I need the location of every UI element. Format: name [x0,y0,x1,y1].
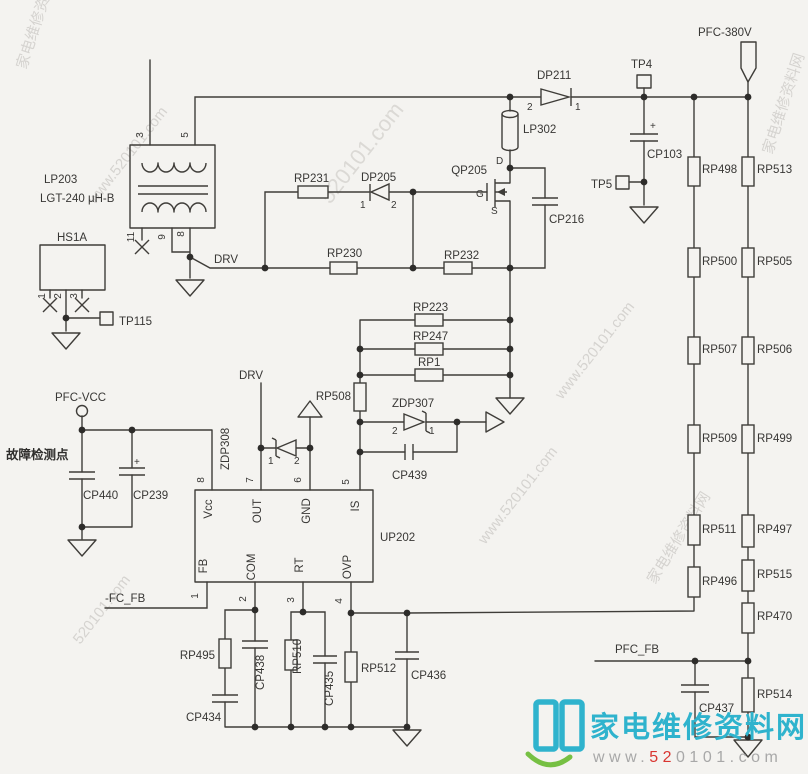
pin-number: 3 [69,293,80,299]
pfc-schematic: 家电维修资料网 www.520101.com 520101.com 家电维修资料… [0,0,808,774]
capacitor-cp434: CP434 [186,695,238,724]
capacitor-cp216: CP216 [532,198,584,226]
resistor-ref: RP223 [413,302,448,314]
resistor-ref: RP506 [757,344,792,356]
watermark-text: 家电维修资料网 [760,51,808,156]
resistor-ref: RP511 [702,524,736,536]
resistor-ref: RP496 [702,576,737,588]
watermark-text: www.520101.com [551,299,638,404]
ic-pin-name: FB [198,558,210,573]
resistor-ref: RP507 [702,344,737,356]
resistor-ref: RP247 [413,331,448,343]
diode-pin: 1 [360,200,366,211]
ground-symbol [393,730,421,746]
ground-symbol [52,333,80,349]
capacitor-cp239: + CP239 [119,457,168,502]
inductor-lp302: LP302 [502,111,556,151]
capacitor-ref: CP440 [83,490,118,502]
polarity-plus: + [650,121,656,132]
resistor-rp513: RP513 [742,157,792,186]
connector-hs1a: HS1A 1 2 3 [37,232,105,312]
watermark-text: www.520101.com [474,444,561,549]
resistor-rp496: RP496 [688,567,737,597]
transformer-ref: LP203 [44,174,77,186]
capacitor-cp436: CP436 [395,652,446,682]
ground-symbol-right [486,412,504,432]
pin-number: 4 [334,598,345,604]
book-icon [528,702,582,765]
resistor-ref: RP499 [757,433,792,445]
test-point-tp4: TP4 [631,59,653,88]
fault-detect-note: 故障检测点 [6,447,69,462]
resistor-rp515: RP515 [742,560,792,591]
capacitor-cp437: CP437 [681,685,734,715]
pin-number: 3 [135,132,146,138]
mosfet-ref: QP205 [451,165,487,177]
capacitor-cp103: + CP103 [630,121,682,161]
pin-number: 6 [293,477,304,483]
net-label-pfc-fb: PFC_FB [615,644,659,656]
ground-symbol [496,398,524,414]
resistor-ref: RP510 [292,639,304,674]
resistor-ref: RP1 [418,357,440,369]
mosfet-qp205: QP205 D G S [451,156,510,217]
resistor-rp230: RP230 [327,248,362,274]
capacitor-ref: CP436 [411,670,446,682]
logo-url-rest: 0101.com [676,749,782,766]
resistor-rp506: RP506 [742,337,792,364]
test-point-tp5: TP5 [591,176,629,191]
test-point-tp115: TP115 [100,312,152,328]
resistor-ref: RP495 [180,650,215,662]
no-connect-x [135,240,149,254]
resistor-rp509: RP509 [688,425,737,453]
pin-number: 2 [53,293,64,299]
pin-number: 7 [245,477,256,483]
resistor-ref: RP497 [757,524,792,536]
resistor-rp1: RP1 [415,357,443,381]
resistor-ref: RP230 [327,248,362,260]
ic-pin-name: OUT [252,499,264,523]
capacitor-ref: CP439 [392,470,427,482]
pin-number: 3 [286,597,297,603]
mosfet-pin-d: D [496,156,503,167]
ground-symbol-up [298,401,322,417]
resistor-ref: RP513 [757,164,792,176]
resistor-rp495: RP495 [180,639,231,668]
resistor-ref: RP231 [294,173,329,185]
pin-number: 5 [341,479,352,485]
net-label-drv: DRV [239,370,263,382]
ic-pin-name: Vcc [203,499,215,518]
pin-number: 2 [238,596,249,602]
ic-pin-name: OVP [342,555,354,580]
capacitor-ref: CP216 [549,214,584,226]
capacitor-ref: CP438 [255,655,267,690]
ground-symbol [68,540,96,556]
resistor-ref: RP470 [757,611,792,623]
diode-ref: ZDP307 [392,398,434,410]
test-point-label: TP4 [631,59,653,71]
terminal-pfc-vcc: PFC-VCC [55,392,106,417]
pin-number: 5 [180,132,191,138]
resistor-ref: RP500 [702,256,737,268]
diode-pin: 1 [268,456,274,467]
test-point-label: TP115 [119,316,152,328]
inductor-ref: LP302 [523,124,556,136]
logo-site-name: 家电维修资料网 [590,710,807,744]
resistor-rp500: RP500 [688,248,737,277]
net-label-drv: DRV [214,254,238,266]
diode-pin: 1 [575,102,581,113]
diode-pin: 1 [429,426,435,437]
ic-pin-name: GND [301,498,313,524]
pin-number: 9 [157,234,168,240]
capacitor-cp440: CP440 [69,472,118,502]
resistor-rp511: RP511 [688,515,736,545]
pin-number: 8 [176,231,187,237]
resistor-rp470: RP470 [742,603,792,633]
capacitor-cp438: CP438 [242,641,268,690]
resistor-rp499: RP499 [742,425,792,453]
resistor-rp223: RP223 [413,302,448,326]
wire-cp103-branch [629,88,644,205]
ic-pin-name: RT [294,557,306,572]
diode-ref: ZDP308 [220,428,232,470]
capacitor-ref: CP239 [133,490,168,502]
diode-pin: 2 [391,200,397,211]
diode-ref: DP205 [361,172,396,184]
resistor-rp232: RP232 [444,250,479,274]
resistor-ref: RP498 [702,164,737,176]
resistor-rp231: RP231 [294,173,329,198]
ic-ref: UP202 [380,532,415,544]
diode-pin: 2 [294,456,300,467]
ic-pin-name: IS [350,500,362,511]
resistor-ref: RP509 [702,433,737,445]
resistor-ref: RP514 [757,689,793,701]
mosfet-pin-g: G [476,189,484,200]
logo-url: www.520101.com [592,749,782,766]
resistor-rp505: RP505 [742,248,792,277]
test-point-label: TP5 [591,179,612,191]
diode-ref: DP211 [537,70,571,82]
net-label: PFC-VCC [55,392,106,404]
logo-url-red: 52 [649,749,676,766]
capacitor-ref: CP434 [186,712,222,724]
resistor-rp247: RP247 [413,331,448,355]
zener-zdp307: ZDP307 2 1 [392,398,435,437]
schematic-page: 家电维修资料网 www.520101.com 520101.com 家电维修资料… [0,0,808,774]
net-label-fc-fb: -FC_FB [105,593,146,605]
diode-pin: 2 [392,426,398,437]
connector-ref: HS1A [57,232,87,244]
capacitor-ref: CP103 [647,149,682,161]
resistor-rp508: RP508 [316,383,366,411]
ground-symbol [630,207,658,223]
terminal-flag [741,42,756,82]
watermark-text: 520101.com [70,572,134,648]
transformer-value: LGT-240 μH-B [40,193,115,205]
wire-out-gnd [261,383,310,490]
diode-dp211: DP211 2 1 [527,70,581,113]
resistor-rp510: RP510 [285,639,304,674]
pin-number: 1 [37,293,48,299]
logo-url-www: www. [592,749,649,766]
mosfet-pin-s: S [491,206,498,217]
terminal-pfc-380v: PFC-380V [698,27,756,82]
resistor-rp514: RP514 [742,678,793,712]
resistor-ref: RP515 [757,569,792,581]
pin-number: 8 [196,477,207,483]
resistor-ref: RP508 [316,391,351,403]
watermark-text: 家电维修资料网 [14,0,63,71]
pin-number: 1 [190,593,201,599]
resistor-rp498: RP498 [688,157,737,186]
wire-vcc [82,416,212,539]
resistor-rp512: RP512 [345,652,396,682]
site-logo: 家电维修资料网 www.520101.com [528,702,807,766]
capacitor-cp435: CP435 [313,656,337,706]
resistor-rp497: RP497 [742,515,792,547]
capacitor-ref: CP435 [324,671,336,706]
resistor-ref: RP505 [757,256,792,268]
capacitor-cp439: CP439 [392,444,427,482]
wire-top-rail [150,60,748,145]
polarity-plus: + [134,457,140,468]
ground-symbol [176,280,204,296]
ic-pin-name: COM [246,554,258,581]
wire-boost-column [510,97,545,268]
resistor-rp507: RP507 [688,337,737,364]
diode-pin: 2 [527,102,533,113]
net-label: PFC-380V [698,27,752,39]
resistor-ref: RP512 [361,663,396,675]
resistor-ref: RP232 [444,250,479,262]
watermark-text: 家电维修资料网 [644,489,714,587]
